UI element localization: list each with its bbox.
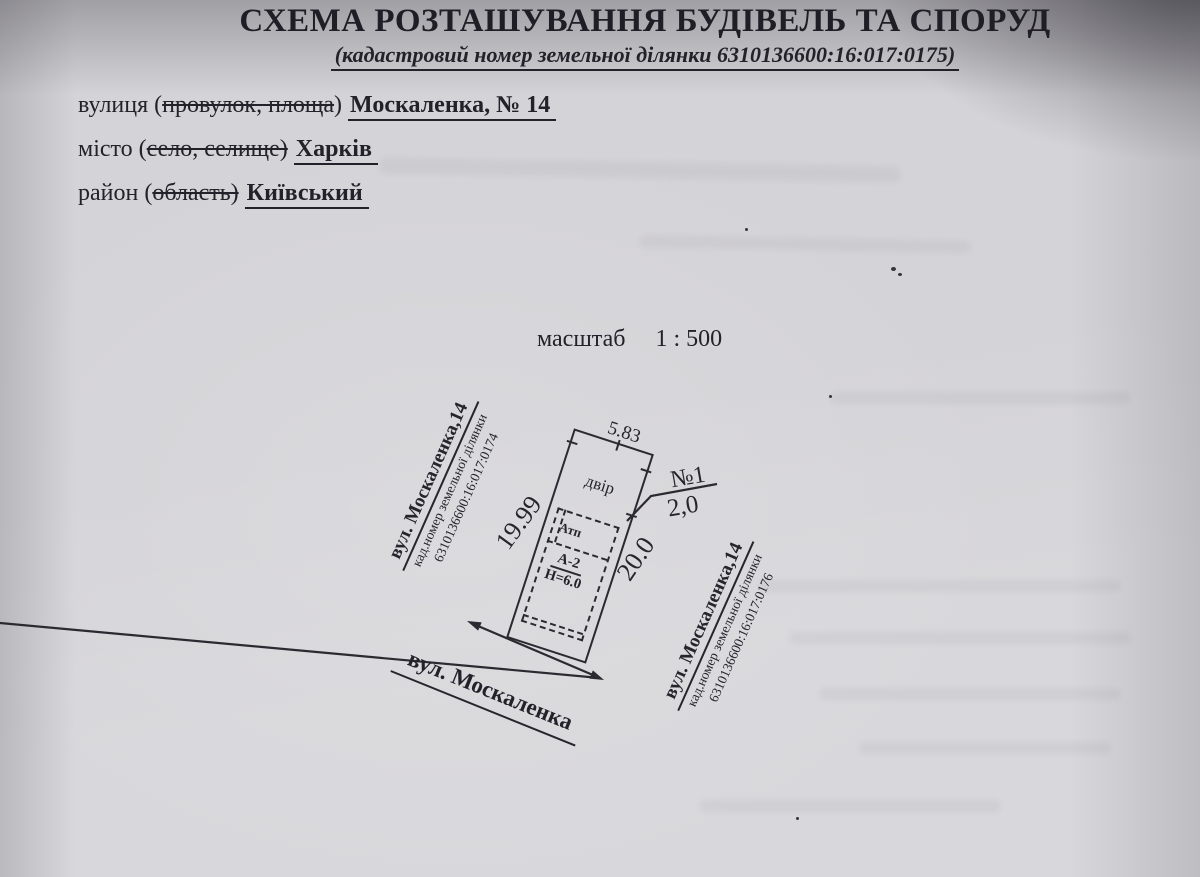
ink-speck	[891, 267, 896, 271]
document-page: СХЕМА РОЗТАШУВАННЯ БУДІВЕЛЬ ТА СПОРУД (к…	[0, 0, 1200, 877]
ink-speck	[829, 395, 832, 398]
arrowhead-left	[467, 621, 482, 631]
street-direction-arrow	[0, 623, 600, 678]
ink-speck	[898, 273, 902, 276]
ink-speck	[796, 817, 799, 820]
dim-entrance: 2,0	[665, 490, 701, 523]
arrowhead-right	[589, 670, 604, 680]
plan-annotations	[0, 0, 1200, 877]
ink-speck	[745, 228, 748, 231]
